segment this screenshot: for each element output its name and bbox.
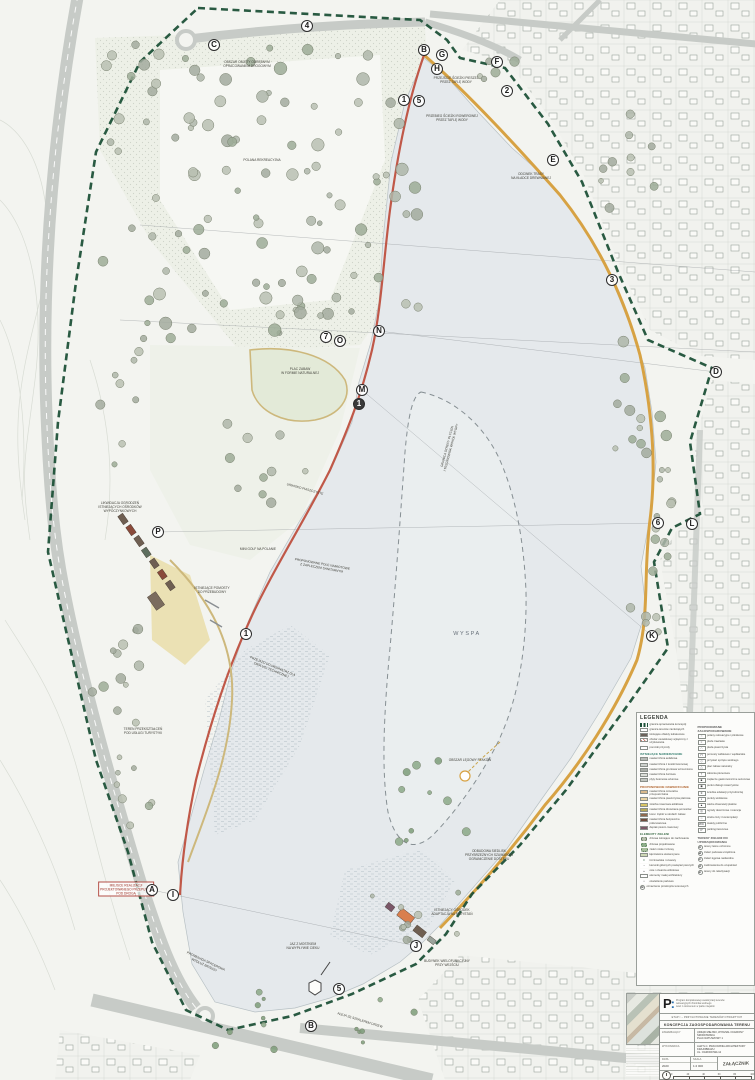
legend-item: ◐punkty widokowe [698,797,753,802]
legend-swatch: ◎ [698,809,706,814]
attachment-label: ZAŁĄCZNIK [718,1056,754,1070]
legend-item-label: łąki kwietne ekstensywne [650,853,680,856]
map-marker-I: I [167,889,179,901]
legend-section-heading: PROPONOWANE NAWIERZCHNIE [640,785,695,789]
legend-item: nawierzchnia asfaltowa [640,757,695,761]
location-thumbnail [626,993,661,1045]
legend-item-label: kierunki głównych powiązań pieszych [650,864,695,867]
legend-swatch: ⊓ [698,753,706,758]
legend-item-label: nawierzchnia z kostki betonowej [650,763,688,766]
legend-swatch: A [698,845,703,850]
map-marker-A: A [146,884,158,896]
legend-item: nawierzchnia żwirowa [640,773,695,777]
legend-item: nawierzchnia bezpieczna poliuretanowa [640,818,695,824]
title-block-rows: ZAMAWIAJĄCYURZĄD MIEJSKI, WYDZIAŁ OCHRON… [660,1029,754,1057]
scale-bar-segment: 80100 m [735,1076,752,1080]
legend-swatch: † [698,772,706,777]
legend-item: •oświetlenie parkowe [640,880,695,884]
map-annotation: PRZEBIEG ŚCIEŻKI ROWEROWEJ PRZEZ TAFLĘ W… [426,114,478,122]
legend-panel: LEGENDA granica opracowania koncepcjigra… [636,712,755,986]
map-marker-2: 2 [501,85,513,97]
legend-section-heading: ELEMENTY ZIELENI [640,832,695,836]
map-marker-K: K [646,630,658,642]
legend-item-label: parkingi terenowe [707,828,728,831]
legend-section-heading: TERENY ZIELENI DO UPORZĄDKOWANIA [698,836,753,844]
legend-item: ◎ogrody deszczowe i retencja [698,809,753,814]
legend-item-label: zadrzewienia do uzupełnień [704,864,737,867]
scale-bar-segment: 0 [673,1076,689,1080]
legend-item-label: drzewa projektowane [650,843,675,846]
legend-item-label: przystań sprzętu wodnego [707,759,738,762]
legend-item-label: kora i zrębki w strefach zabaw [650,813,686,816]
map-marker-O: O [334,335,346,347]
legend-item: WCtoalety publiczne [698,822,753,827]
legend-item: ○polany rekreacyjne i piknikowe [698,734,753,739]
legend-item-label: punkty widokowe [707,797,727,800]
legend-item: zieleń niska i krzewy [640,848,695,852]
legend-swatch [640,843,648,847]
map-marker-B: B [418,44,430,56]
map-marker-6: 6 [652,517,664,529]
legend-swatch [640,837,648,841]
legend-swatch: ▲ [698,803,706,808]
map-annotation: OBSZAR OBJĘTY ODRĘBNYM OPRACOWANIEM DROG… [223,60,271,68]
legend-item-label: tereny leśne ochronne [704,845,731,848]
legend-swatch [640,763,648,767]
legend-item: kora i zrębki w strefach zabaw [640,813,695,817]
scale-bar-tick-label: 80 [733,1073,736,1076]
legend-item-label: deptak pieszo-rowerowy [650,826,679,829]
legend-item-label: nawierzchnia bezpieczna poliuretanowa [650,818,695,824]
legend-swatch [640,728,648,732]
map-marker-G: G [436,49,448,61]
legend-swatch [640,803,648,807]
legend-item-label: zaplecze gastronomiczne sezonowe [707,778,750,781]
legend-item: nawierzchnia piaszczysta plażowa [640,797,695,801]
legend-swatch [640,773,648,777]
legend-item-label: zieleń parkowa urządzona [704,851,735,854]
legend-item: Boznaczenie przekrojów terenowych [640,885,695,890]
thumbnail-caption-lines [626,1046,659,1076]
legend-item: Bzieleń parkowa urządzona [698,851,753,856]
legend-item-label: elementy małej architektury [650,874,683,877]
legend-swatch: → [640,864,648,868]
legend-item-label: obszar osuwiskowy wyłączony z użytkowani… [650,738,695,744]
legend-item: ≈plaże trawiaste [698,740,753,745]
legend-item-label: punkt obsługi rowerzystów [707,784,739,787]
legend-swatch: B [640,885,645,890]
legend-column-left: granica opracowania koncepcjigranica ter… [640,723,695,892]
meta-row: DATA 2020 SKALA 1:2 000 ZAŁĄCZNIK [660,1057,754,1071]
scale-cell: SKALA 1:2 000 [691,1057,718,1070]
scale-bar-tick-label: 0 [671,1073,672,1076]
legend-item: △plac zabaw naturalny [698,765,753,770]
legend-item: łąki kwietne ekstensywne [640,853,695,857]
legend-item-label: ścieżka rowerowa asfaltowa [650,803,683,806]
legend-swatch: ☼ [698,816,706,821]
legend-swatch [640,853,648,857]
map-marker-N: N [373,325,385,337]
legend-swatch: △ [698,765,706,770]
legend-swatch: C [698,857,703,862]
legend-item-label: nawierzchnia drewniana pomostów [650,808,692,811]
legend-swatch: ○ [698,734,706,739]
map-marker-5: 5 [413,95,425,107]
legend-item-label: drzewa istniejące do zachowania [650,837,689,840]
legend-swatch [640,808,648,812]
legend-item: Czieleń łęgowa nadwodna [698,857,753,862]
legend-item-label: oznaczenie przekrojów terenowych [647,885,689,888]
legend-item: nawierzchnia z kostki betonowej [640,763,695,767]
document-title: KONCEPCJA ZAGOSPODAROWANIA TERENU [660,1021,754,1029]
legend-swatch [640,733,648,737]
north-arrow-icon [662,1071,671,1080]
scale-bar-tick-label: 40 [702,1073,705,1076]
legend-swatch [640,813,648,817]
legend-item-label: strefa ciszy i kontemplacji [707,816,737,819]
legend-swatch: ≡ [640,859,648,863]
scale-value: 1:2 000 [691,1063,717,1069]
legend-item: ■zaplecze gastronomiczne sezonowe [698,778,753,783]
map-marker-1: 1 [240,628,252,640]
legend-swatch: ∗ [698,791,706,796]
map-marker-C: C [208,39,220,51]
legend-item: ◇przystań sprzętu wodnego [698,759,753,764]
stage-line: ETAP I – PRZYGOTOWANIE TERENÓW OTWARTYCH [660,1014,754,1021]
legend-item: ☼strefa ciszy i kontemplacji [698,816,753,821]
city-logo: P: [660,996,676,1011]
map-annotation: PLAC ZABAW W FORMIE NATURALNEJ [281,367,319,375]
legend-item-label: polany rekreacyjne i piknikowe [707,734,743,737]
legend-swatch [640,757,648,761]
legend-swatch [640,826,648,830]
legend-swatch [640,723,648,727]
map-marker-D: D [710,366,722,378]
map-marker-F: F [491,56,503,68]
legend-swatch: ■ [698,778,706,783]
legend-item: obszar osuwiskowy wyłączony z użytkowani… [640,738,695,744]
legend-item: nawierzchnia drewniana pomostów [640,808,695,812]
legend-item-label: tereny do rekultywacji [704,870,730,873]
legend-swatch [640,778,648,782]
island-label: WYSPA [453,631,480,637]
legend-item: istniejące obiekty kubaturowe [640,733,695,737]
legend-item: *pomniki przyrody [640,746,695,750]
legend-item-label: istniejące obiekty kubaturowe [650,733,685,736]
legend-item: deptak pieszo-rowerowy [640,826,695,830]
scale-bar-segment: 60 [720,1076,736,1080]
legend-item: nawierzchnia mineralna przepuszczalna [640,790,695,796]
legend-swatch: P [698,828,706,833]
legend-swatch [640,790,648,794]
title-block-row: ZAMAWIAJĄCYURZĄD MIEJSKI, WYDZIAŁ OCHRON… [660,1029,754,1043]
scale-bar-segment: 20 [689,1076,705,1080]
legend-item: ⊓pomosty widokowe i wędkarskie [698,753,753,758]
legend-item-label: siłownia plenerowa [707,772,730,775]
scale-bar: 020406080100 m [673,1072,752,1079]
legend-item: nawierzchnia gruntowa wzmocniona [640,768,695,772]
legend-item-label: nawierzchnia gruntowa wzmocniona [650,768,693,771]
legend-item-label: osie i otwarcia widokowe [650,869,680,872]
legend-swatch: ≈ [698,740,706,745]
map-annotation: MINI GOLF NA POLANIE [240,547,276,551]
map-annotation: JAZ Z MOSTKIEM NA WYPŁYWIE CIEKU [287,942,320,950]
row-value: URZĄD MIEJSKI, WYDZIAŁ OCHRONY ŚRODOWISK… [695,1029,754,1042]
legend-item-label: nawierzchnia asfaltowa [650,757,678,760]
site-plan-page: WYSPA 4CBGFH215E3N7ODM1P6L1KAIJ5B OBSZAR… [0,0,755,1080]
legend-item-label: plac zabaw naturalny [707,765,732,768]
legend-item: ∗ścieżka edukacji przyrodniczej [698,791,753,796]
title-block: P: Program kompleksowej rewaloryzacji te… [659,993,755,1080]
legend-title: LEGENDA [640,715,752,721]
legend-swatch: ◐ [698,797,706,802]
map-marker-H: H [431,63,443,75]
map-marker-B: B [305,1020,317,1032]
legend-item-label: pomosty widokowe i wędkarskie [707,753,745,756]
map-marker-M: M [356,384,368,396]
graphic-scale-row: 020406080100 m [660,1071,754,1080]
legend-item-label: nawierzchnia żwirowa [650,773,676,776]
legend-swatch [640,738,648,742]
map-marker-7: 7 [320,331,332,343]
title-block-header: P: Program kompleksowej rewaloryzacji te… [660,994,754,1014]
legend-item-label: nawierzchnia piaszczysta plażowa [650,797,691,800]
program-description: Program kompleksowej rewaloryzacji teren… [676,999,754,1008]
title-block-row: WYKONAWCAALW S.C. PRACOWNIA ARCHITEKTURY… [660,1043,754,1057]
map-marker-E: E [547,154,559,166]
legend-swatch [640,848,648,852]
legend-swatch [640,768,648,772]
map-marker-4: 4 [301,20,313,32]
scale-bar-tick-label: 60 [718,1073,721,1076]
map-marker-L: L [686,518,698,530]
map-marker-1: 1 [353,398,365,410]
legend-swatch [640,797,648,801]
legend-item: †siłownia plenerowa [698,772,753,777]
legend-swatch: • [640,880,648,884]
map-annotation: ODCINEK TRASY NA KŁADCE DREWNIANEJ [511,172,551,180]
legend-swatch: ◉ [698,784,706,789]
legend-item-label: zieleń niska i krzewy [650,848,675,851]
map-annotation: LIKWIDACJA OGRODZEŃ ISTNIEJĄCYCH OŚRODKÓ… [98,501,141,513]
legend-swatch: » [640,869,648,873]
legend-item-label: nawierzchnia mineralna przepuszczalna [650,790,695,796]
legend-item: Atereny leśne ochronne [698,845,753,850]
date-cell: DATA 2020 [660,1057,691,1070]
program-line: wraz z otoczeniem w parku miejskim [676,1005,752,1008]
legend-item: granica opracowania koncepcji [640,723,695,727]
legend-item: ◉punkt obsługi rowerzystów [698,784,753,789]
row-label: ZAMAWIAJĄCY [660,1029,695,1042]
row-value: ALW S.C. PRACOWNIA ARCHITEKTURY KRAJOBRA… [695,1043,754,1056]
legend-item: elementy małej architektury [640,874,695,878]
map-annotation: OBSZAR LĘGOWY PTAKÓW [449,758,491,762]
legend-swatch: E [698,870,703,875]
scale-bar-tick-label: 100 m [750,1073,755,1076]
legend-swatch [640,874,648,878]
date-value: 2020 [660,1063,690,1069]
map-annotation: ISTNIEJĄCE POMOSTY DO PRZEBUDOWY [194,586,229,594]
legend-item-label: trzcinowiska i szuwary [650,859,677,862]
legend-swatch: ∴ [698,746,706,751]
legend-item: ścieżka rowerowa asfaltowa [640,803,695,807]
legend-item-label: toalety publiczne [707,822,727,825]
legend-item-label: oświetlenie parkowe [650,880,674,883]
legend-swatch: * [640,746,648,750]
legend-item-label: plaża piaszczysta [707,746,728,749]
map-marker-3: 3 [606,274,618,286]
legend-item-label: granica terenów zamkniętych [650,728,685,731]
legend-column-right: PROPONOWANE ZAGOSPODAROWANIE○polany rekr… [698,723,753,892]
legend-item-label: wieża obserwacji ptaków [707,803,737,806]
legend-item-label: ścieżka edukacji przyrodniczej [707,791,743,794]
map-annotation: ISTNIEJĄCY OŚRODEK ADAPTACJA NA PRZYSTAŃ [431,908,472,916]
legend-item-label: ogrody deszczowe i retencja [707,809,741,812]
legend-item: ∴plaża piaszczysta [698,746,753,751]
row-label: WYKONAWCA [660,1043,695,1056]
legend-swatch: B [698,851,703,856]
map-annotation: PRZEJŚCIE ŚCIEŻKI PIESZEJ PRZEZ TAFLĘ WO… [434,76,479,84]
legend-item-label: plaże trawiaste [707,740,725,743]
legend-item: płyty betonowe ażurowe [640,778,695,782]
map-marker-1: 1 [398,94,410,106]
scale-bar-segment: 40 [704,1076,720,1080]
map-annotation: ODBUDOWA SIEDLISK PRZYBRZEŻNYCH SZUWARÓW… [465,849,513,861]
legend-item-label: pomniki przyrody [650,746,670,749]
map-annotation: BUDYNEK WIELOFUNKCYJNY PRZY WEJŚCIU [424,959,470,967]
legend-item: Pparkingi terenowe [698,828,753,833]
legend-swatch: ◇ [698,759,706,764]
legend-item: granica terenów zamkniętych [640,728,695,732]
map-annotation: TEREN PRZEKSZTAŁCEŃ POD USŁUGI TURYSTYKI [124,727,163,735]
legend-item: ≡trzcinowiska i szuwary [640,859,695,863]
legend-item: ▲wieża obserwacji ptaków [698,803,753,808]
scale-bar-tick-label: 20 [687,1073,690,1076]
map-annotation: POLANA REKREACYJNA [243,158,280,162]
legend-item: drzewa istniejące do zachowania [640,837,695,841]
legend-section-heading: ISTNIEJĄCE NAWIERZCHNIE [640,752,695,756]
map-marker-J: J [410,940,422,952]
legend-swatch [640,818,648,822]
legend-item: drzewa projektowane [640,843,695,847]
legend-item-label: zieleń łęgowa nadwodna [704,857,733,860]
legend-item: →kierunki głównych powiązań pieszych [640,864,695,868]
legend-section-heading: PROPONOWANE ZAGOSPODAROWANIE [698,725,753,733]
legend-swatch: WC [698,822,706,827]
legend-item: Dzadrzewienia do uzupełnień [698,864,753,869]
map-marker-P: P [152,526,164,538]
legend-swatch: D [698,864,703,869]
legend-item: Etereny do rekultywacji [698,870,753,875]
map-marker-5: 5 [333,983,345,995]
legend-item-label: granica opracowania koncepcji [650,723,687,726]
legend-item-label: płyty betonowe ażurowe [650,778,679,781]
legend-item: »osie i otwarcia widokowe [640,869,695,873]
